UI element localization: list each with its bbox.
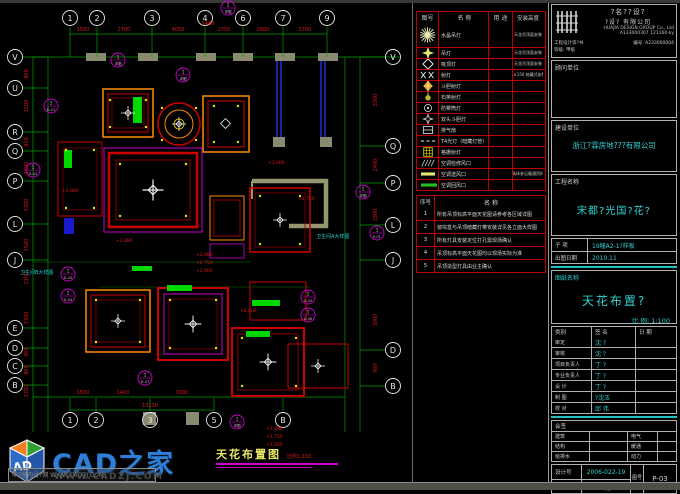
company-name-cn: ?名??设? (582, 7, 674, 17)
diamond-o-icon (419, 59, 437, 69)
svg-text:13130: 13130 (142, 403, 158, 409)
svg-text:1500: 1500 (77, 27, 90, 33)
design-no: 2006-022-19 (582, 469, 630, 476)
legend-name: 空调送风口 (439, 169, 489, 179)
signature-row: 审核沈 ? (552, 347, 676, 358)
project-label: 工程名称 (552, 175, 676, 186)
svg-text:详图: 详图 (115, 61, 122, 66)
brand-url: WWW.CADZJ.COM (54, 472, 164, 482)
legend-row: 空调送风口具体参见暖通资料 (417, 168, 545, 179)
legend-header-height: 安装高度 (513, 12, 543, 23)
legend-height: 天花吊顶面安装 (513, 23, 543, 47)
xx-icon (419, 70, 437, 80)
legend-usage (489, 158, 513, 168)
svg-text:900: 900 (24, 365, 30, 375)
subitem-label: 子 项 (552, 239, 588, 251)
starburst-icon (417, 24, 438, 46)
svg-text:详图: 详图 (360, 193, 368, 198)
note-row: 1所有吊顶标高平面天花图请参考各区域详图 (417, 208, 545, 220)
svg-text:B: B (12, 381, 18, 390)
svg-text:1: 1 (236, 417, 239, 423)
svg-text:P: P (13, 177, 18, 186)
svg-text:B: B (280, 416, 286, 425)
svg-text:B: B (390, 382, 396, 391)
svg-text:+2.600: +2.600 (240, 308, 257, 314)
legend-row: 水晶吊灯天花吊顶面安装 (417, 23, 545, 47)
legend-height (513, 136, 543, 146)
svg-text:D: D (12, 344, 18, 353)
client-name: 浙江?霖房地???有限公司 (552, 140, 676, 151)
legend-name: 空调检修风口 (439, 158, 489, 168)
legend-header-row: 图号 名 称 用 途 安装高度 (417, 12, 545, 23)
legend-usage (489, 70, 513, 80)
grid-centerlines (33, 34, 400, 432)
svg-text:K-01: K-01 (373, 235, 381, 239)
huiqian-row: 建筑电气 (552, 431, 676, 441)
signature-row: 审定沈 ? (552, 337, 676, 347)
svg-text:4050: 4050 (172, 27, 185, 33)
svg-text:D-02: D-02 (29, 172, 37, 176)
svg-text:3: 3 (149, 14, 154, 23)
svg-text:1500: 1500 (24, 100, 30, 113)
client-label: 建设单位 (552, 121, 676, 132)
legend-height (513, 180, 543, 190)
svg-text:1488: 1488 (202, 21, 215, 27)
circle-dot-icon (419, 103, 437, 113)
legend-name: 射灯 (439, 70, 489, 80)
consultant-label: 顾问单位 (552, 61, 676, 72)
svg-text:900: 900 (24, 69, 30, 79)
legend-height (513, 81, 543, 91)
round-coffer (158, 103, 200, 145)
legend-row: 空调回风口 (417, 179, 545, 190)
svg-text:D-06: D-06 (304, 317, 312, 321)
signature-row: 校 对邱 伟 (552, 402, 676, 413)
lamp-s-icon (419, 92, 437, 102)
legend-usage (489, 59, 513, 69)
svg-text:3000: 3000 (176, 390, 189, 396)
legend-name: 空调回风口 (439, 180, 489, 190)
legend-row: 空调检修风口 (417, 157, 545, 168)
legend-header-name: 名 称 (439, 12, 489, 23)
room-mid-right (210, 188, 310, 258)
svg-text:+3.000: +3.000 (268, 160, 285, 166)
legend-usage (489, 180, 513, 190)
svg-text:+2.600: +2.600 (196, 268, 213, 274)
huiqian-section: 会签 建筑电气结构暖通给排水动力 (551, 420, 677, 462)
cyan-divider (551, 266, 677, 268)
svg-text:详图: 详图 (225, 9, 232, 14)
legend-header-symbol: 图号 (417, 12, 439, 23)
legend-row: 吸顶灯天花吊顶面安装 (417, 58, 545, 69)
svg-text:3: 3 (147, 416, 152, 425)
notes-header-no: 序号 (417, 196, 435, 208)
svg-text:900: 900 (373, 363, 379, 373)
svg-text:D-03: D-03 (64, 276, 72, 280)
project-section: 工程名称 宋都?光国?花? (551, 174, 677, 236)
svg-text:2700: 2700 (118, 27, 131, 33)
svg-text:3300: 3300 (24, 199, 30, 212)
drawing-title-scale: 比例1:100 (287, 454, 311, 460)
legend-height: G×150 暗藏式安装 (513, 70, 543, 80)
svg-text:1: 1 (376, 228, 379, 234)
huiqian-label: 会签 (552, 421, 676, 431)
svg-text:V: V (390, 53, 396, 62)
company-name-cn2: ?设? 有限公司 (582, 17, 674, 26)
huiqian-row: 给排水动力 (552, 451, 676, 461)
svg-text:1: 1 (67, 14, 72, 23)
svg-text:1: 1 (362, 187, 365, 193)
note-row: 2窗帘盒与吊顶暗藏灯带安装详见各立面大样图 (417, 220, 545, 233)
legend-usage (489, 23, 513, 47)
legend-height (513, 147, 543, 157)
vent-icon (419, 125, 437, 135)
legend-header-usage: 用 途 (489, 12, 513, 23)
star4-icon (419, 48, 437, 58)
legend-name: 吸顶灯 (439, 59, 489, 69)
legend-row: 双头斗胆灯 (417, 113, 545, 124)
svg-text:1500: 1500 (77, 390, 90, 396)
svg-text:+2.880: +2.880 (116, 238, 133, 244)
notes-table: 序号 名 称 1所有吊顶标高平面天花图请参考各区域详图2窗帘盒与吊顶暗藏灯带安装… (416, 195, 546, 273)
signature-header: 类别 签 名 日 期 (552, 327, 676, 337)
legend-usage (489, 125, 513, 135)
svg-text:2750: 2750 (218, 27, 231, 33)
legend-usage (489, 136, 513, 146)
legend-row: 石英射灯 (417, 91, 545, 102)
cyan-divider2 (551, 416, 677, 418)
huiqian-row: 结构暖通 (552, 441, 676, 451)
cert-label: 工程设计资?书 (554, 40, 583, 46)
svg-text:1800: 1800 (373, 209, 379, 222)
legend-usage (489, 92, 513, 102)
svg-text:D-04: D-04 (64, 298, 73, 302)
detail-callouts: 1详图1详图1D-011D-021D-031D-041详图1K-011D-051… (26, 1, 384, 429)
legend-name: 斗胆射灯 (439, 81, 489, 91)
svg-text:1: 1 (67, 416, 72, 425)
bottom-window-bar (0, 482, 680, 490)
legend-usage (489, 81, 513, 91)
legend-height: 具体参见暖通资料 (513, 169, 543, 179)
cert-no: 编号: A233000004 (633, 40, 674, 46)
svg-text:Q: Q (390, 142, 396, 151)
room-detail-label: 卫生间A大样图 (316, 233, 349, 240)
room-bottom-center (158, 288, 228, 360)
svg-text:5: 5 (211, 416, 216, 425)
legend-name: 排气扇 (439, 125, 489, 135)
return-icon (419, 180, 437, 190)
svg-text:1: 1 (144, 373, 147, 379)
signature-table: 类别 签 名 日 期 审定沈 ?审核沈 ?项目负责人丁 ?专业负责人丁 ?设 计… (551, 326, 677, 414)
svg-text:2600: 2600 (257, 27, 270, 33)
subitem-value: 19幢A2-1?样板 (588, 241, 676, 250)
svg-text:1400: 1400 (117, 390, 130, 396)
svg-text:3300: 3300 (24, 312, 30, 325)
title-underline (216, 463, 338, 465)
legend-table: 图号 名 称 用 途 安装高度 水晶吊灯天花吊顶面安装吊灯天花吊顶面安装吸顶灯天… (416, 11, 546, 191)
note-row: 3所有灯具安装定位打孔需现场确认 (417, 233, 545, 246)
note-row: 4吊顶标高平面天花图均以现场实际为准 (417, 246, 545, 259)
legend-usage (489, 169, 513, 179)
company-section: ?名??设? ?设? 有限公司 HUAJIA DESIGN GROUP Co.,… (551, 4, 677, 58)
client-section: 建设单位 浙江?霖房地???有限公司 (551, 120, 677, 172)
supply-icon (419, 169, 437, 179)
sheetname-section: 图纸名称 天花布置? 比 例: 1:100 (551, 270, 677, 324)
svg-text:9: 9 (324, 14, 329, 23)
legend-usage (489, 48, 513, 58)
svg-text:+2.880: +2.880 (266, 426, 283, 432)
svg-text:2: 2 (93, 416, 98, 425)
svg-text:2400: 2400 (373, 159, 379, 172)
svg-text:1: 1 (67, 291, 70, 297)
hatch-icon (419, 158, 437, 168)
svg-text:900: 900 (24, 137, 30, 147)
legend-name: T4光灯（暗藏灯管） (439, 136, 489, 146)
room-detail-label: 卫生间B大样图 (20, 269, 53, 276)
title-block: ?名??设? ?设? 有限公司 HUAJIA DESIGN GROUP Co.,… (548, 3, 679, 483)
date-label: 出图日期 (552, 252, 588, 264)
svg-text:1500: 1500 (24, 239, 30, 252)
signature-row: 项目负责人丁 ? (552, 358, 676, 369)
svg-text:+2.880: +2.880 (196, 252, 213, 258)
subitem-section: 子 项 19幢A2-1?样板 出图日期 2010.11 (551, 238, 677, 264)
star4-s-icon (419, 114, 437, 124)
svg-text:900: 900 (24, 347, 30, 357)
grid-icon (419, 147, 437, 157)
svg-text:R: R (12, 128, 18, 137)
room-top-middle (203, 96, 249, 152)
svg-text:1350: 1350 (24, 385, 30, 398)
consultant-section: 顾问单位 (551, 60, 677, 118)
svg-text:3000: 3000 (373, 314, 379, 327)
drawing-title-text: 天花布置图 (216, 446, 281, 462)
svg-text:2700: 2700 (299, 27, 312, 33)
cert-grade: 等级: 甲级 (554, 47, 575, 53)
legend-name: 水晶吊灯 (439, 23, 489, 47)
ceiling-plan-drawing: 12346791235BVURQPLJEDCBVQPLJDB 150027004… (0, 0, 412, 482)
diamond-f-icon (419, 81, 437, 91)
svg-text:J: J (391, 256, 394, 265)
signature-row: 设 计丁 ? (552, 380, 676, 391)
company-logo-icon (554, 7, 580, 37)
legend-row: T4光灯（暗藏灯管） (417, 135, 545, 146)
cad-screenshot: { "colors":{"bg":"#000000","grid_green":… (0, 0, 680, 490)
legend-height (513, 125, 543, 135)
legend-name: 石英射灯 (439, 92, 489, 102)
svg-text:1: 1 (32, 165, 35, 171)
legend-usage (489, 147, 513, 157)
legend-usage (489, 103, 513, 113)
svg-text:D-01: D-01 (47, 108, 55, 112)
legend-height (513, 103, 543, 113)
legend-name: 格栅射灯 (439, 147, 489, 157)
svg-text:D-05: D-05 (304, 299, 312, 303)
legend-height (513, 114, 543, 124)
svg-text:U: U (12, 84, 18, 93)
svg-text:1: 1 (227, 3, 230, 9)
cert-number-top: A133000307 121160-ky (582, 31, 674, 36)
notes-header-row: 序号 名 称 (417, 196, 545, 208)
svg-text:D: D (390, 346, 396, 355)
signature-row: 制 图?沈玉 (552, 391, 676, 402)
svg-text:6: 6 (240, 14, 245, 23)
svg-text:Q: Q (12, 147, 18, 156)
room-living-center (104, 148, 202, 232)
notes-header-name: 名 称 (435, 198, 545, 207)
legend-name: 双头斗胆灯 (439, 114, 489, 124)
svg-text:1: 1 (50, 101, 53, 107)
title-underline2 (216, 467, 312, 468)
svg-text:L: L (13, 220, 18, 229)
date-value: 2010.11 (588, 255, 676, 262)
legend-height (513, 158, 543, 168)
svg-text:E: E (12, 324, 17, 333)
svg-text:1: 1 (182, 70, 185, 76)
legend-row: 射灯G×150 暗藏式安装 (417, 69, 545, 80)
sheetname-label: 图纸名称 (552, 271, 676, 282)
room-top-left (103, 89, 153, 137)
svg-text:详图: 详图 (234, 423, 241, 428)
svg-text:1: 1 (117, 55, 120, 61)
svg-text:+2.750: +2.750 (196, 260, 213, 266)
project-name: 宋都?光国?花? (552, 202, 676, 217)
svg-text:+2.880: +2.880 (62, 188, 79, 194)
svg-text:V: V (12, 53, 18, 62)
legend-row: 斗胆射灯 (417, 80, 545, 91)
signature-row: 专业负责人丁 ? (552, 369, 676, 380)
svg-text:L: L (391, 221, 396, 230)
legend-row: 格栅射灯 (417, 146, 545, 157)
legend-height: 天花吊顶面安装 (513, 59, 543, 69)
legend-row: 排气扇 (417, 124, 545, 135)
svg-text:详图: 详图 (180, 76, 187, 81)
legend-height: 天花吊顶面安装 (513, 48, 543, 58)
legend-name: 吊灯 (439, 48, 489, 58)
legend-name: 防雾筒灯 (439, 103, 489, 113)
legend-panel: 图号 名 称 用 途 安装高度 水晶吊灯天花吊顶面安装吊灯天花吊顶面安装吸顶灯天… (412, 3, 548, 482)
design-no-label: 设计号 (552, 465, 582, 479)
drawing-title: 天花布置图比例1:100 (216, 443, 338, 468)
sheet-scale: 比 例: 1:100 (552, 309, 676, 327)
sheet-name: 天花布置? (552, 292, 676, 309)
legend-usage (489, 114, 513, 124)
legend-row: 防雾筒灯 (417, 102, 545, 113)
room-kitchen (58, 142, 102, 216)
note-row: 5吊顶造型灯具由业主确认 (417, 259, 545, 272)
svg-text:1: 1 (307, 310, 310, 316)
svg-text:7: 7 (280, 14, 285, 23)
svg-text:D-07: D-07 (141, 380, 149, 384)
svg-text:2: 2 (94, 14, 99, 23)
svg-text:C: C (12, 362, 18, 371)
svg-text:1: 1 (307, 292, 310, 298)
legend-height (513, 92, 543, 102)
svg-text:J: J (13, 256, 16, 265)
legend-row: 吊灯天花吊顶面安装 (417, 47, 545, 58)
svg-text:1: 1 (67, 269, 70, 275)
svg-text:P: P (391, 179, 396, 188)
dash-icon (419, 136, 437, 146)
svg-text:3300: 3300 (373, 94, 379, 107)
